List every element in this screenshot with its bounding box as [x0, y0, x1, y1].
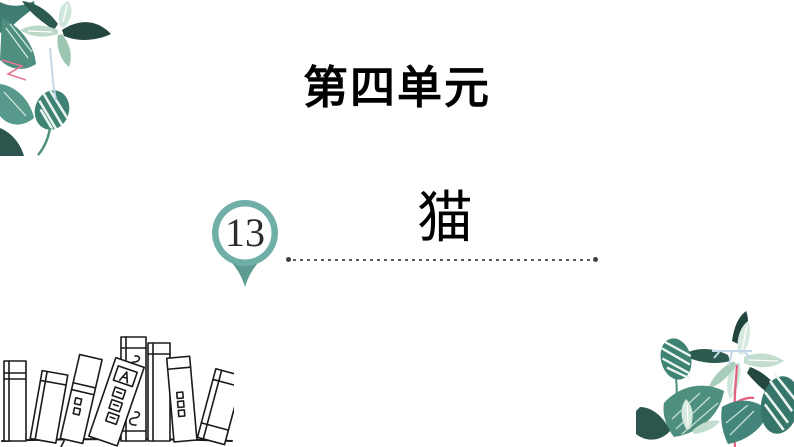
books-sketch-icon [0, 328, 234, 447]
plant-bottom-right-icon [636, 311, 794, 447]
lesson-number-pin: 13 [211, 199, 279, 293]
line-end-dot [593, 257, 598, 262]
slide-canvas: 第四单元 13 猫 [0, 0, 794, 447]
dashed-line [293, 259, 591, 261]
unit-title: 第四单元 [0, 62, 794, 114]
lesson-title: 猫 [300, 188, 590, 250]
dotted-underline [286, 255, 598, 264]
lesson-number: 13 [211, 212, 279, 254]
line-start-dot [286, 257, 291, 262]
